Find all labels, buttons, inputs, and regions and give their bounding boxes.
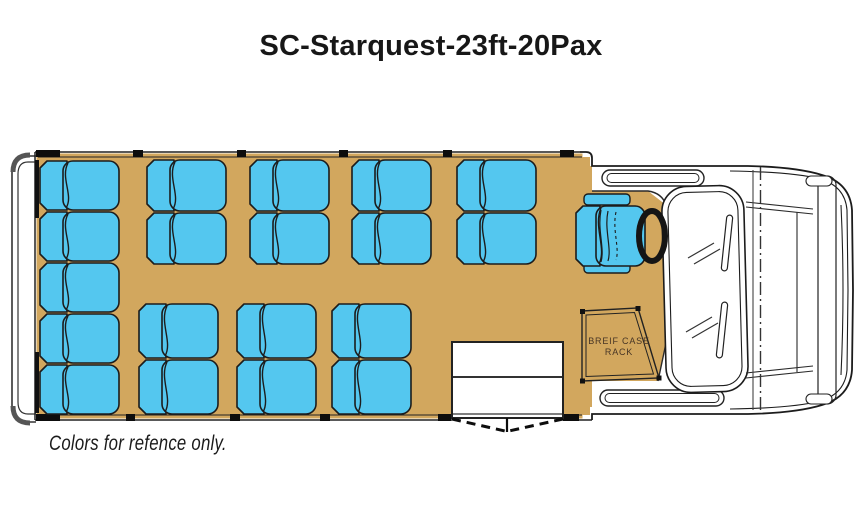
color-reference-note: Colors for refence only. (49, 431, 277, 456)
color-reference-note-text: Colors for refence only. (49, 431, 227, 456)
rear-bumper (12, 155, 36, 423)
rear-bench-seat (40, 365, 119, 414)
entry-steps (452, 342, 563, 418)
passenger-seat (139, 360, 218, 414)
briefcase-rack-label-line1: BREIF CASE (588, 336, 650, 346)
passenger-seat (352, 160, 431, 211)
rear-bench-seat (40, 314, 119, 363)
driver-door-window (602, 170, 704, 186)
passenger-seat (332, 304, 411, 358)
passenger-seat (457, 160, 536, 211)
rear-bench-seat (40, 212, 119, 261)
entry-door-swing (452, 418, 563, 432)
passenger-seat (237, 304, 316, 358)
passenger-seat (250, 213, 329, 264)
passenger-seat (147, 160, 226, 211)
passenger-seat (352, 213, 431, 264)
front-corner-trim (806, 176, 832, 186)
passenger-seat (147, 213, 226, 264)
briefcase-rack-label-line2: RACK (605, 347, 633, 357)
rear-bench-seat (40, 161, 119, 210)
rear-bench-seat (40, 263, 119, 312)
front-bumper (806, 176, 843, 404)
driver-seat (576, 206, 645, 266)
passenger-seat (457, 213, 536, 264)
hood-lines (746, 167, 813, 412)
windshield (661, 185, 748, 393)
passenger-seat (237, 360, 316, 414)
passenger-seat (250, 160, 329, 211)
front-corner-trim (806, 394, 832, 404)
passenger-seat (139, 304, 218, 358)
passenger-seat (332, 360, 411, 414)
